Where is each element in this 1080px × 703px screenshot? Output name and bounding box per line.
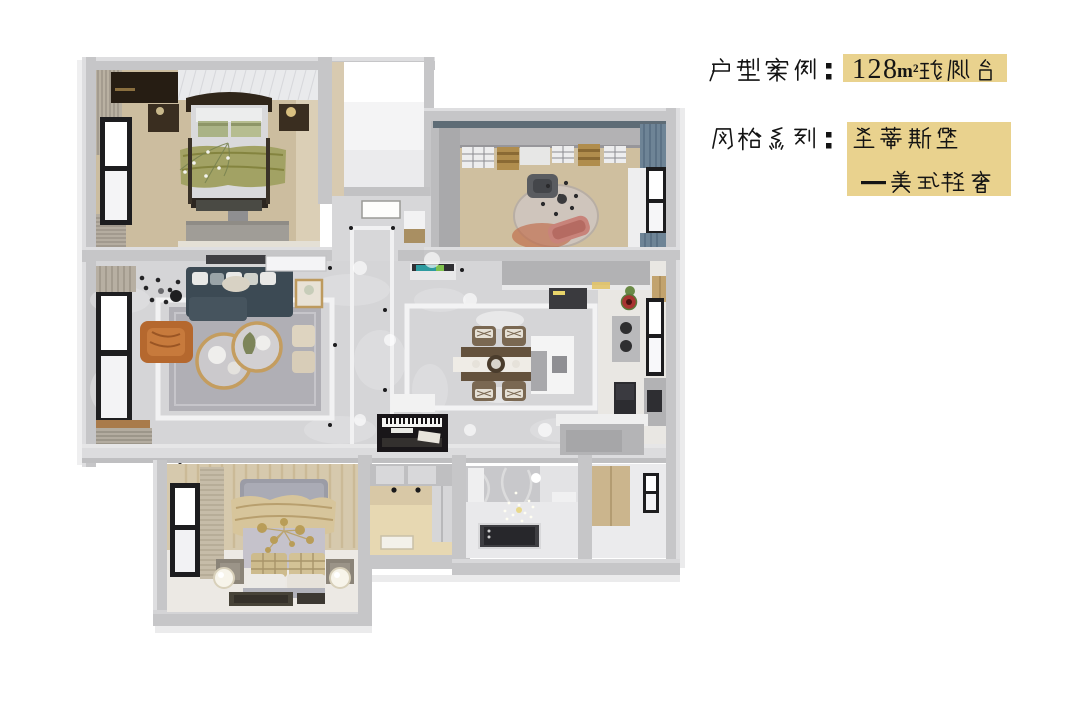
svg-text:128: 128	[852, 54, 899, 85]
svg-text:m²: m²	[897, 61, 919, 82]
